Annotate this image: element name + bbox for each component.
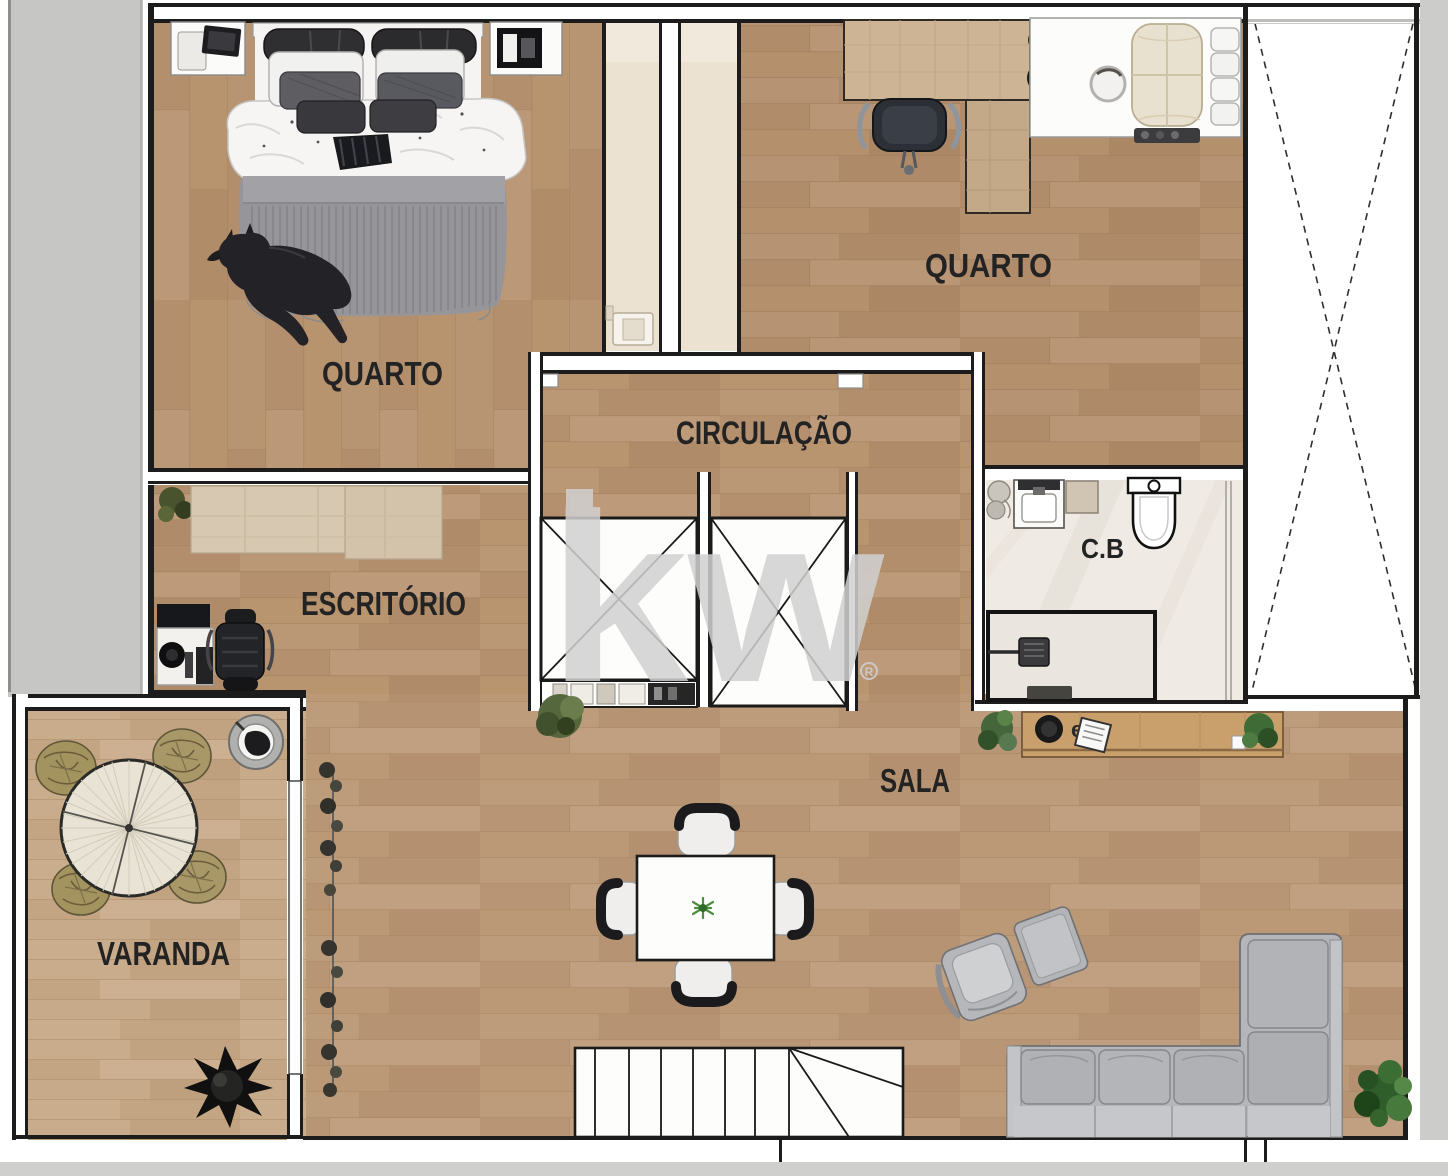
svg-text:QUARTO: QUARTO: [322, 355, 443, 392]
svg-text:QUARTO: QUARTO: [925, 247, 1052, 284]
svg-text:CIRCULAÇÃO: CIRCULAÇÃO: [676, 415, 852, 451]
svg-text:ESCRITÓRIO: ESCRITÓRIO: [301, 585, 466, 622]
svg-text:VARANDA: VARANDA: [97, 935, 230, 972]
svg-text:SALA: SALA: [880, 762, 950, 799]
svg-text:C.B: C.B: [1081, 533, 1124, 564]
svg-text:kw: kw: [548, 464, 885, 732]
svg-text:R: R: [865, 665, 874, 679]
